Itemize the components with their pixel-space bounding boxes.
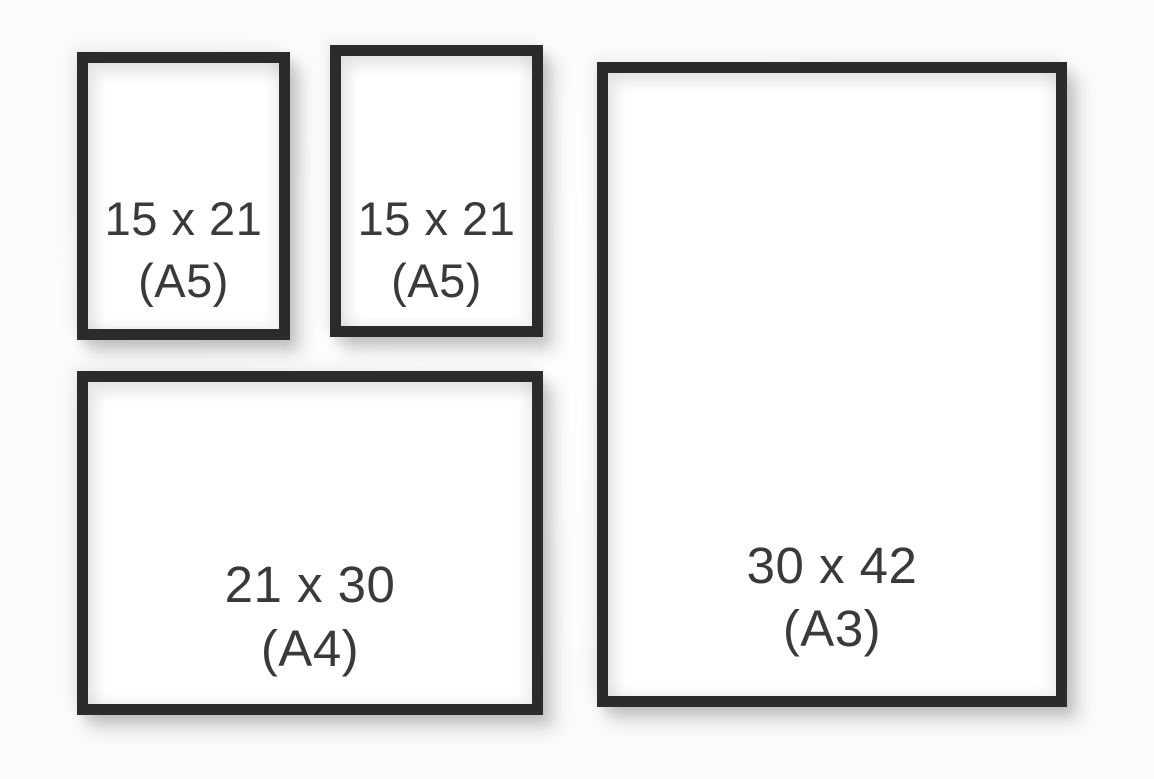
frame-a3-right: 30 x 42 (A3): [597, 62, 1067, 707]
size-dimensions-text: 15 x 21: [341, 188, 532, 250]
size-dimensions-text: 21 x 30: [88, 553, 532, 617]
wall-background: 15 x 21 (A5) 15 x 21 (A5) 30 x 42 (A3) 2…: [0, 0, 1154, 779]
frame-size-label: 30 x 42 (A3): [608, 534, 1056, 660]
paper-format-text: (A5): [341, 250, 532, 312]
frame-a5-top-middle: 15 x 21 (A5): [330, 45, 543, 337]
frame-a4-bottom-left: 21 x 30 (A4): [77, 371, 543, 715]
frame-size-label: 21 x 30 (A4): [88, 553, 532, 681]
frame-a5-top-left: 15 x 21 (A5): [77, 52, 290, 340]
paper-format-text: (A4): [88, 617, 532, 681]
size-dimensions-text: 15 x 21: [88, 188, 279, 250]
size-dimensions-text: 30 x 42: [608, 534, 1056, 597]
paper-format-text: (A3): [608, 597, 1056, 660]
frame-size-label: 15 x 21 (A5): [88, 188, 279, 312]
frame-size-label: 15 x 21 (A5): [341, 188, 532, 312]
paper-format-text: (A5): [88, 250, 279, 312]
